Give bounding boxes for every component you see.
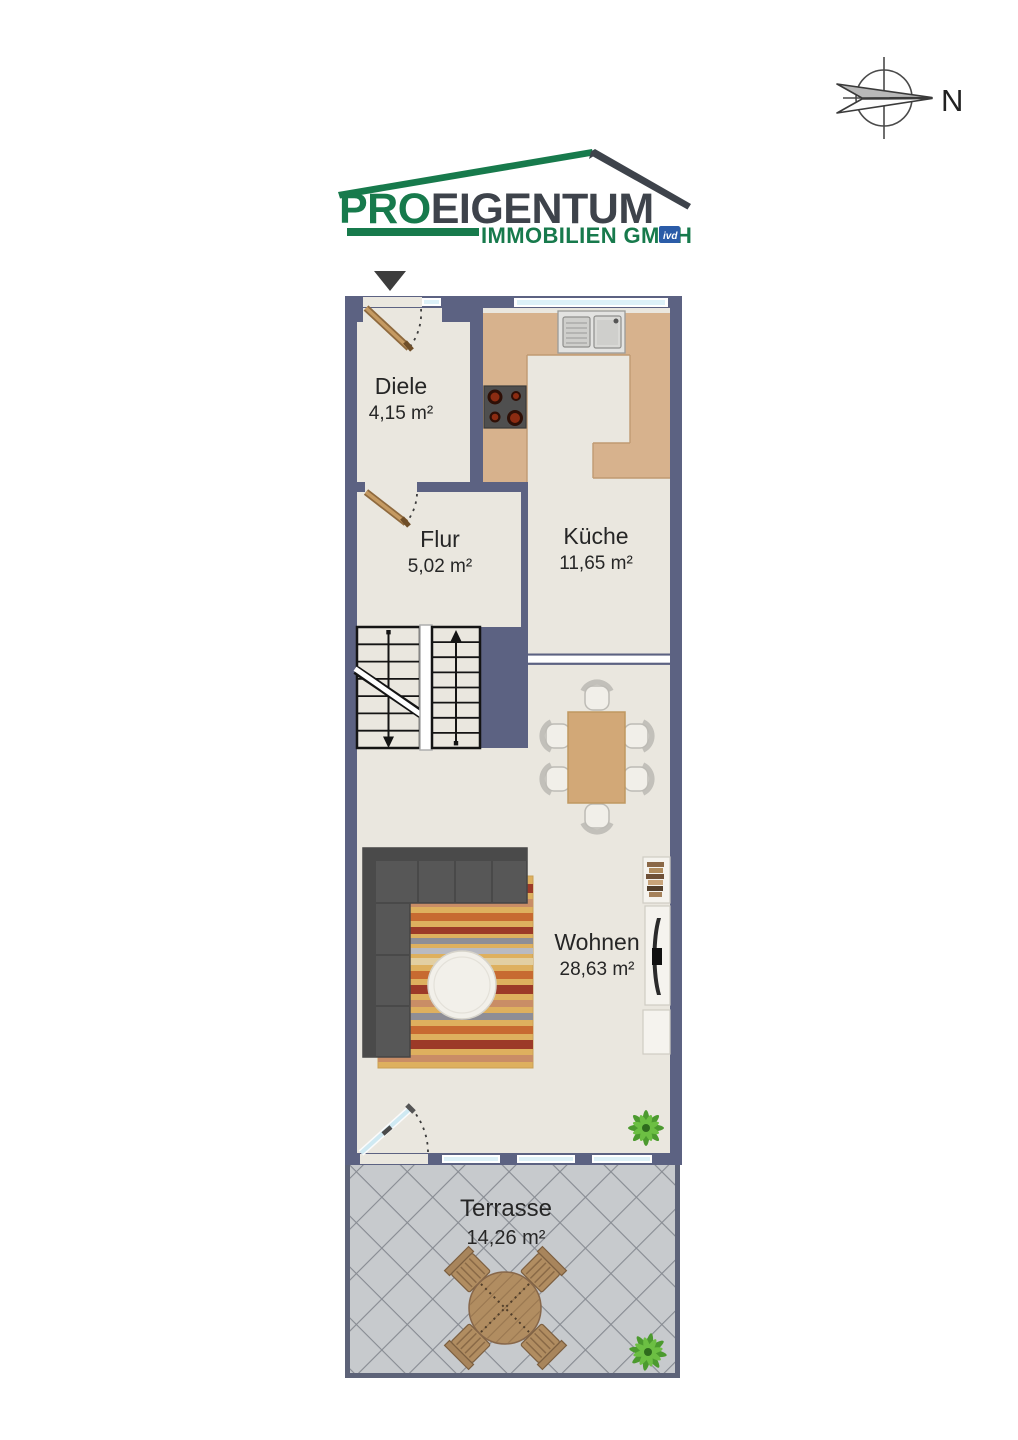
entrance-arrow-icon <box>374 271 406 291</box>
company-logo: PROEIGENTUM IMMOBILIEN GMBH ivd <box>330 140 698 252</box>
stair-divider <box>420 625 432 750</box>
room-area: 11,65 m² <box>559 551 633 576</box>
coffee-table <box>428 951 496 1019</box>
room-area: 4,15 m² <box>369 401 433 426</box>
room-area: 28,63 m² <box>554 957 639 982</box>
window <box>517 1155 575 1163</box>
dining-chair <box>583 682 611 710</box>
room-label-flur: Flur 5,02 m² <box>408 524 472 579</box>
dining-chair <box>624 722 652 750</box>
room-name: Diele <box>369 371 433 401</box>
compass-icon: N <box>820 40 990 155</box>
dining-chair <box>542 722 570 750</box>
room-area: 14,26 m² <box>460 1225 552 1251</box>
dining-chair <box>624 765 652 793</box>
dining-table <box>568 712 625 803</box>
dining-chair <box>542 765 570 793</box>
room-label-wohnen: Wohnen 28,63 m² <box>554 927 639 982</box>
window <box>422 298 441 306</box>
stove-icon <box>484 386 526 428</box>
kitchen-passage <box>528 654 670 665</box>
room-label-diele: Diele 4,15 m² <box>369 371 433 426</box>
cabinet <box>643 1010 670 1054</box>
room-name: Wohnen <box>554 927 639 957</box>
tv-sideboard <box>645 906 670 1005</box>
floorplan-page: N PROEIGENTUM IMMOBILIEN GMBH ivd <box>0 0 1018 1440</box>
logo-underline <box>347 228 479 236</box>
room-area: 5,02 m² <box>408 554 472 579</box>
window <box>514 298 668 307</box>
dining-chair <box>583 804 611 832</box>
kitchen-sink-icon <box>558 311 625 353</box>
staircase <box>355 625 480 750</box>
north-label: N <box>941 83 963 118</box>
room-label-kueche: Küche 11,65 m² <box>559 521 633 576</box>
ivd-badge-label: ivd <box>663 231 678 242</box>
room-name: Flur <box>408 524 472 554</box>
window <box>592 1155 652 1163</box>
bookshelf <box>643 857 670 903</box>
window <box>442 1155 500 1163</box>
room-name: Terrasse <box>460 1193 552 1225</box>
room-name: Küche <box>559 521 633 551</box>
plant-icon <box>628 1110 664 1146</box>
room-label-terrasse: Terrasse 14,26 m² <box>460 1193 552 1251</box>
